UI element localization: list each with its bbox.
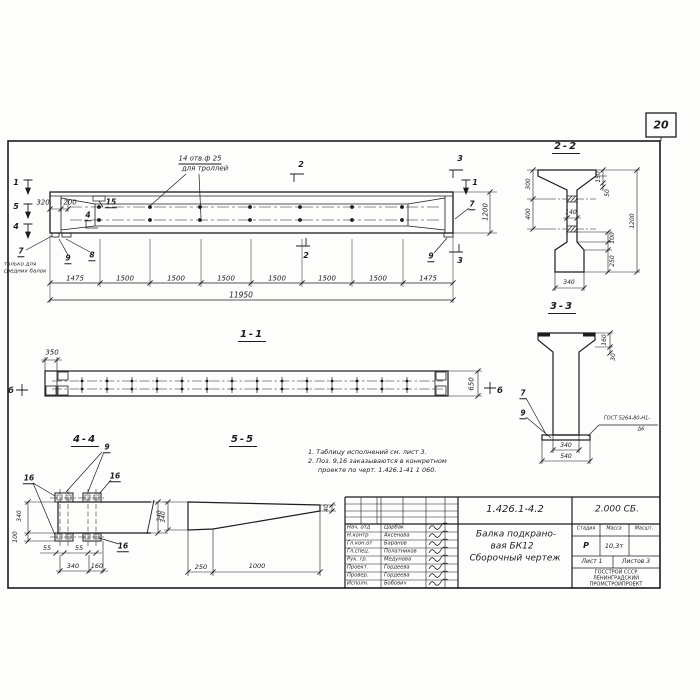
dim-segment-4: 1500 [217,276,235,283]
pos-label-7-right: 7 [468,200,475,210]
page-number: 20 [653,120,668,131]
pos-label-9-section33: 9 [519,409,526,419]
dim-340-left-detail44: 340 [17,510,23,521]
pos-label-9: 9 [64,254,71,264]
dim-650: 650 [469,377,476,390]
pos-label-8: 8 [88,251,95,261]
scale-header: Масшт. [635,528,653,533]
drawing-linework [0,0,700,700]
cut-mark-1-right: 1 [472,179,478,187]
staff-role-5: Проект. [347,565,368,570]
doc-number: 1.426.1-4.2 [486,505,544,515]
pos-label-7-section33: 7 [519,389,526,399]
staff-name-7: Бобович [384,581,407,586]
cut-mark-1: 1 [13,179,19,187]
marker-b-right: б [497,387,503,395]
pos-label-9-detail44: 9 [103,443,110,453]
cut-mark-5: 5 [13,203,19,211]
dim-50: 50 [605,189,611,197]
dim-200: 200 [63,200,76,207]
staff-role-1: Н.контр [347,533,369,538]
staff-role-4: Рук. гр. [347,557,367,562]
dim-segment-5: 1500 [268,276,286,283]
weld-note: ГОСТ 5264-80-Н1- [604,417,650,422]
section-3-3-title: 3-3 [548,302,576,314]
pos-label-16-a: 16 [23,474,35,484]
dim-total-11950: 11950 [229,291,253,299]
dim-150: 150 [596,171,602,182]
doc-code: 2.000 СБ. [595,506,639,515]
note-line-2: 2. Поз. 9,16 заказываются в конкретном [308,458,447,465]
dim-140: 140 [565,210,576,216]
dim-1200-section: 1200 [630,213,636,228]
cut-mark-2-top: 2 [298,161,304,169]
dim-segment-2: 1500 [116,276,134,283]
dim-160-detail44: 160 [91,563,103,570]
pos-7-note-line2: средних балок [4,269,47,275]
pos-label-9-right: 9 [427,252,434,262]
pos-label-16-c: 16 [117,542,129,552]
dim-30: 30 [611,353,617,361]
pos-label-15: 15 [105,198,117,208]
dim-40: 40 [324,504,330,512]
section-2-2-title: 2-2 [552,142,580,154]
dim-250: 250 [610,255,616,266]
drawing-title-line3: Сборочный чертеж [469,555,560,564]
note-line-1: 1. Таблицу исполнений см. лист 3. [308,449,427,456]
staff-name-6: Гордеева [384,573,410,578]
cut-mark-3-top: 3 [457,155,463,163]
staff-role-2: Гл.кон.от [347,541,372,546]
dim-250-detail55: 250 [195,564,207,571]
dim-340-section22: 340 [563,280,574,286]
hole-callout-line2: для троллей [182,166,228,173]
pos-7-note-line1: только для [4,262,36,268]
dim-55-b: 55 [75,545,83,552]
drawing-title-line1: Балка подкрано- [476,531,556,540]
staff-role-6: Провер. [347,573,369,578]
drawing-title-line2: вая БК12 [490,543,533,552]
section-1-1-title: 1-1 [238,330,266,342]
org-line-3: ПРОМСТРОЙПРОЕКТ [590,583,643,588]
stage-header: Стадия [577,528,595,533]
pos-label-7: 7 [17,247,24,257]
staff-name-3: Полатников [384,549,417,554]
dim-340-section33: 340 [560,443,571,449]
marker-b-left: б [8,387,14,395]
staff-name-4: Медунова [384,557,411,562]
drawing-sheet: 20 1 5 4 320 200 15 4 14 отв.ф 25 для тр… [0,0,700,700]
dim-100-detail44: 100 [13,531,19,542]
dim-segment-7: 1500 [369,276,387,283]
staff-name-1: Аксенова [384,533,410,538]
cut-mark-2-bottom: 2 [303,252,309,260]
staff-name-5: Гордеева [384,565,410,570]
dim-segment-1: 1475 [66,276,84,283]
detail-5-5-title: 5-5 [229,435,257,447]
dim-1200-elevation: 1200 [483,203,490,221]
sheets-total: Листов 3 [622,559,650,565]
staff-role-3: Гл.спец. [347,549,369,554]
staff-role-0: Нач. отд [347,525,370,530]
mass-header: Масса [606,528,621,533]
dim-160: 160 [602,334,608,345]
pos-label-4: 4 [84,211,91,221]
dim-segment-3: 1500 [167,276,185,283]
dim-320: 320 [36,200,49,207]
stage-value: Р [583,542,589,550]
dim-1000: 1000 [249,563,266,570]
dim-segment-6: 1500 [318,276,336,283]
weld-note-2: Δ6 [638,428,645,433]
dim-100-section: 100 [610,232,616,243]
dim-540: 540 [560,454,571,460]
dim-340-bottom-detail44: 340 [67,563,79,570]
cut-mark-3-bottom: 3 [457,257,463,265]
dim-300: 300 [526,178,532,189]
dim-55-a: 55 [43,545,51,552]
staff-name-0: Царбак [384,525,404,530]
hole-callout-line1: 14 отв.ф 25 [179,156,222,165]
mass-value: 10,3т [605,543,623,550]
detail-4-4-title: 4-4 [71,435,99,447]
pos-label-16-b: 16 [109,472,121,482]
dim-segment-8: 1475 [419,276,437,283]
dim-350: 350 [45,350,58,357]
dim-400: 400 [526,208,532,219]
staff-name-2: Баранов [384,541,407,546]
note-line-3: проекте по черт. 1.426.1-41 1 060. [318,467,436,474]
sheet-number: Лист 1 [582,559,603,565]
cut-mark-4: 4 [13,223,19,231]
dim-340-detail55: 340 [157,510,163,521]
staff-role-7: Исполн. [347,581,369,586]
